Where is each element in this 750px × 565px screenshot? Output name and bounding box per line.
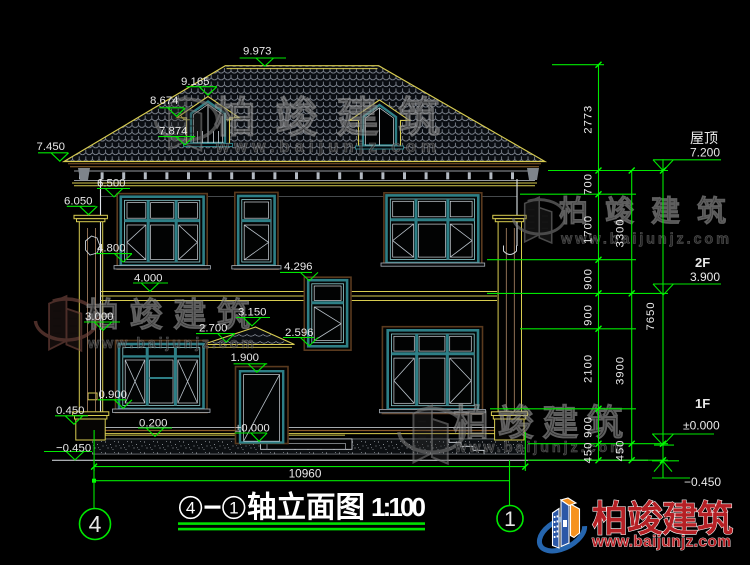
svg-text:450: 450 bbox=[615, 440, 627, 462]
svg-text:0.450: 0.450 bbox=[56, 405, 85, 417]
svg-text:2100: 2100 bbox=[583, 354, 595, 383]
svg-text:0.200: 0.200 bbox=[139, 418, 168, 430]
svg-text:1700: 1700 bbox=[583, 215, 595, 244]
svg-text:0.900: 0.900 bbox=[99, 389, 128, 401]
svg-text:7.874: 7.874 bbox=[159, 126, 188, 138]
svg-text:7.200: 7.200 bbox=[690, 146, 720, 160]
svg-text:1:100: 1:100 bbox=[371, 492, 426, 522]
svg-text:6.500: 6.500 bbox=[97, 178, 126, 190]
svg-text:700: 700 bbox=[583, 173, 595, 195]
svg-text:3300: 3300 bbox=[615, 219, 627, 248]
svg-text:±0.000: ±0.000 bbox=[683, 419, 720, 433]
svg-text:7.450: 7.450 bbox=[37, 141, 66, 153]
svg-text:9.165: 9.165 bbox=[181, 76, 210, 88]
svg-text:4.296: 4.296 bbox=[284, 261, 313, 273]
svg-text:9.973: 9.973 bbox=[243, 46, 272, 58]
svg-text:www.baijunjz.com: www.baijunjz.com bbox=[591, 534, 731, 551]
svg-text:6.050: 6.050 bbox=[64, 196, 93, 208]
svg-text:4.800: 4.800 bbox=[97, 243, 126, 255]
svg-text:2773: 2773 bbox=[583, 105, 595, 134]
svg-text:4.000: 4.000 bbox=[134, 273, 163, 285]
svg-text:3900: 3900 bbox=[615, 356, 627, 385]
svg-text:3.000: 3.000 bbox=[85, 311, 114, 323]
svg-text:900: 900 bbox=[583, 304, 595, 326]
svg-text:3.150: 3.150 bbox=[238, 307, 267, 319]
svg-text:1: 1 bbox=[229, 499, 238, 518]
svg-text:2F: 2F bbox=[695, 255, 710, 270]
svg-text:900: 900 bbox=[583, 268, 595, 290]
svg-text:900: 900 bbox=[583, 416, 595, 438]
svg-text:1.900: 1.900 bbox=[231, 352, 260, 364]
svg-text:屋顶: 屋顶 bbox=[690, 130, 718, 146]
svg-text:2.596: 2.596 bbox=[285, 327, 314, 339]
svg-text:4: 4 bbox=[89, 511, 102, 537]
svg-text:2.700: 2.700 bbox=[199, 323, 228, 335]
svg-text:4: 4 bbox=[186, 499, 195, 518]
svg-text:8.674: 8.674 bbox=[150, 95, 179, 107]
svg-text:轴立面图: 轴立面图 bbox=[247, 490, 365, 524]
svg-text:1: 1 bbox=[504, 508, 516, 531]
svg-text:3.900: 3.900 bbox=[690, 270, 720, 284]
svg-text:−0.450: −0.450 bbox=[684, 475, 721, 489]
svg-text:1F: 1F bbox=[695, 396, 710, 411]
svg-text:7650: 7650 bbox=[645, 302, 657, 331]
svg-text:±0.000: ±0.000 bbox=[235, 422, 270, 434]
svg-text:450: 450 bbox=[583, 442, 595, 464]
svg-text:−0.450: −0.450 bbox=[56, 443, 91, 455]
svg-text:10960: 10960 bbox=[289, 467, 322, 481]
